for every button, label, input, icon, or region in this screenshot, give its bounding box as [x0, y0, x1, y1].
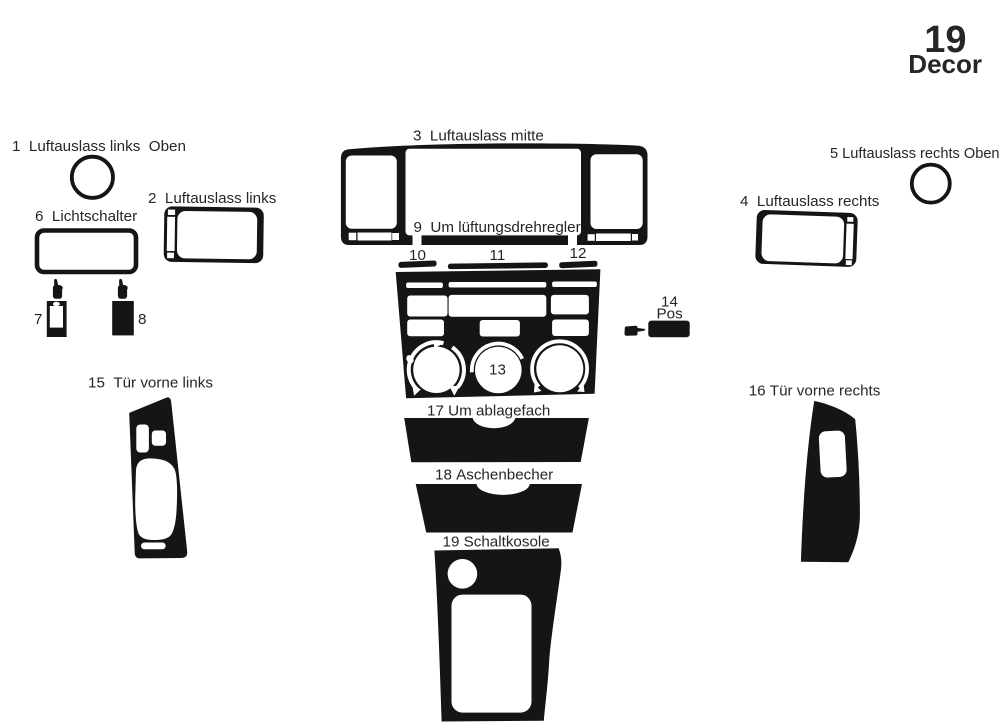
svg-text:Pos: Pos [657, 306, 684, 323]
svg-text:13: 13 [489, 362, 506, 379]
svg-text:10: 10 [409, 247, 426, 264]
svg-text:3 Luftauslass mitte: 3 Luftauslass mitte [413, 128, 544, 145]
svg-text:7: 7 [34, 311, 42, 328]
svg-text:18 Aschenbecher: 18 Aschenbecher [435, 467, 553, 484]
svg-text:19 Schaltkosole: 19 Schaltkosole [443, 534, 550, 551]
svg-text:2 Luftauslass links: 2 Luftauslass links [148, 190, 277, 207]
svg-text:17 Um ablagefach: 17 Um ablagefach [427, 403, 550, 420]
svg-text:8: 8 [138, 311, 146, 328]
svg-text:Decor: Decor [908, 49, 982, 79]
svg-text:16 Tür vorne rechts: 16 Tür vorne rechts [749, 383, 881, 400]
svg-text:12: 12 [570, 245, 587, 262]
svg-text:5 Luftauslass rechts Oben: 5 Luftauslass rechts Oben [830, 146, 1000, 162]
svg-text:1 Luftauslass links Oben: 1 Luftauslass links Oben [12, 138, 186, 155]
svg-text:4 Luftauslass rechts: 4 Luftauslass rechts [740, 193, 880, 210]
svg-text:6 Lichtschalter: 6 Lichtschalter [35, 208, 137, 225]
svg-text:9 Um lüftungsdrehregler: 9 Um lüftungsdrehregler [414, 219, 581, 236]
svg-text:15 Tür vorne links: 15 Tür vorne links [88, 375, 213, 392]
svg-text:11: 11 [490, 247, 506, 264]
